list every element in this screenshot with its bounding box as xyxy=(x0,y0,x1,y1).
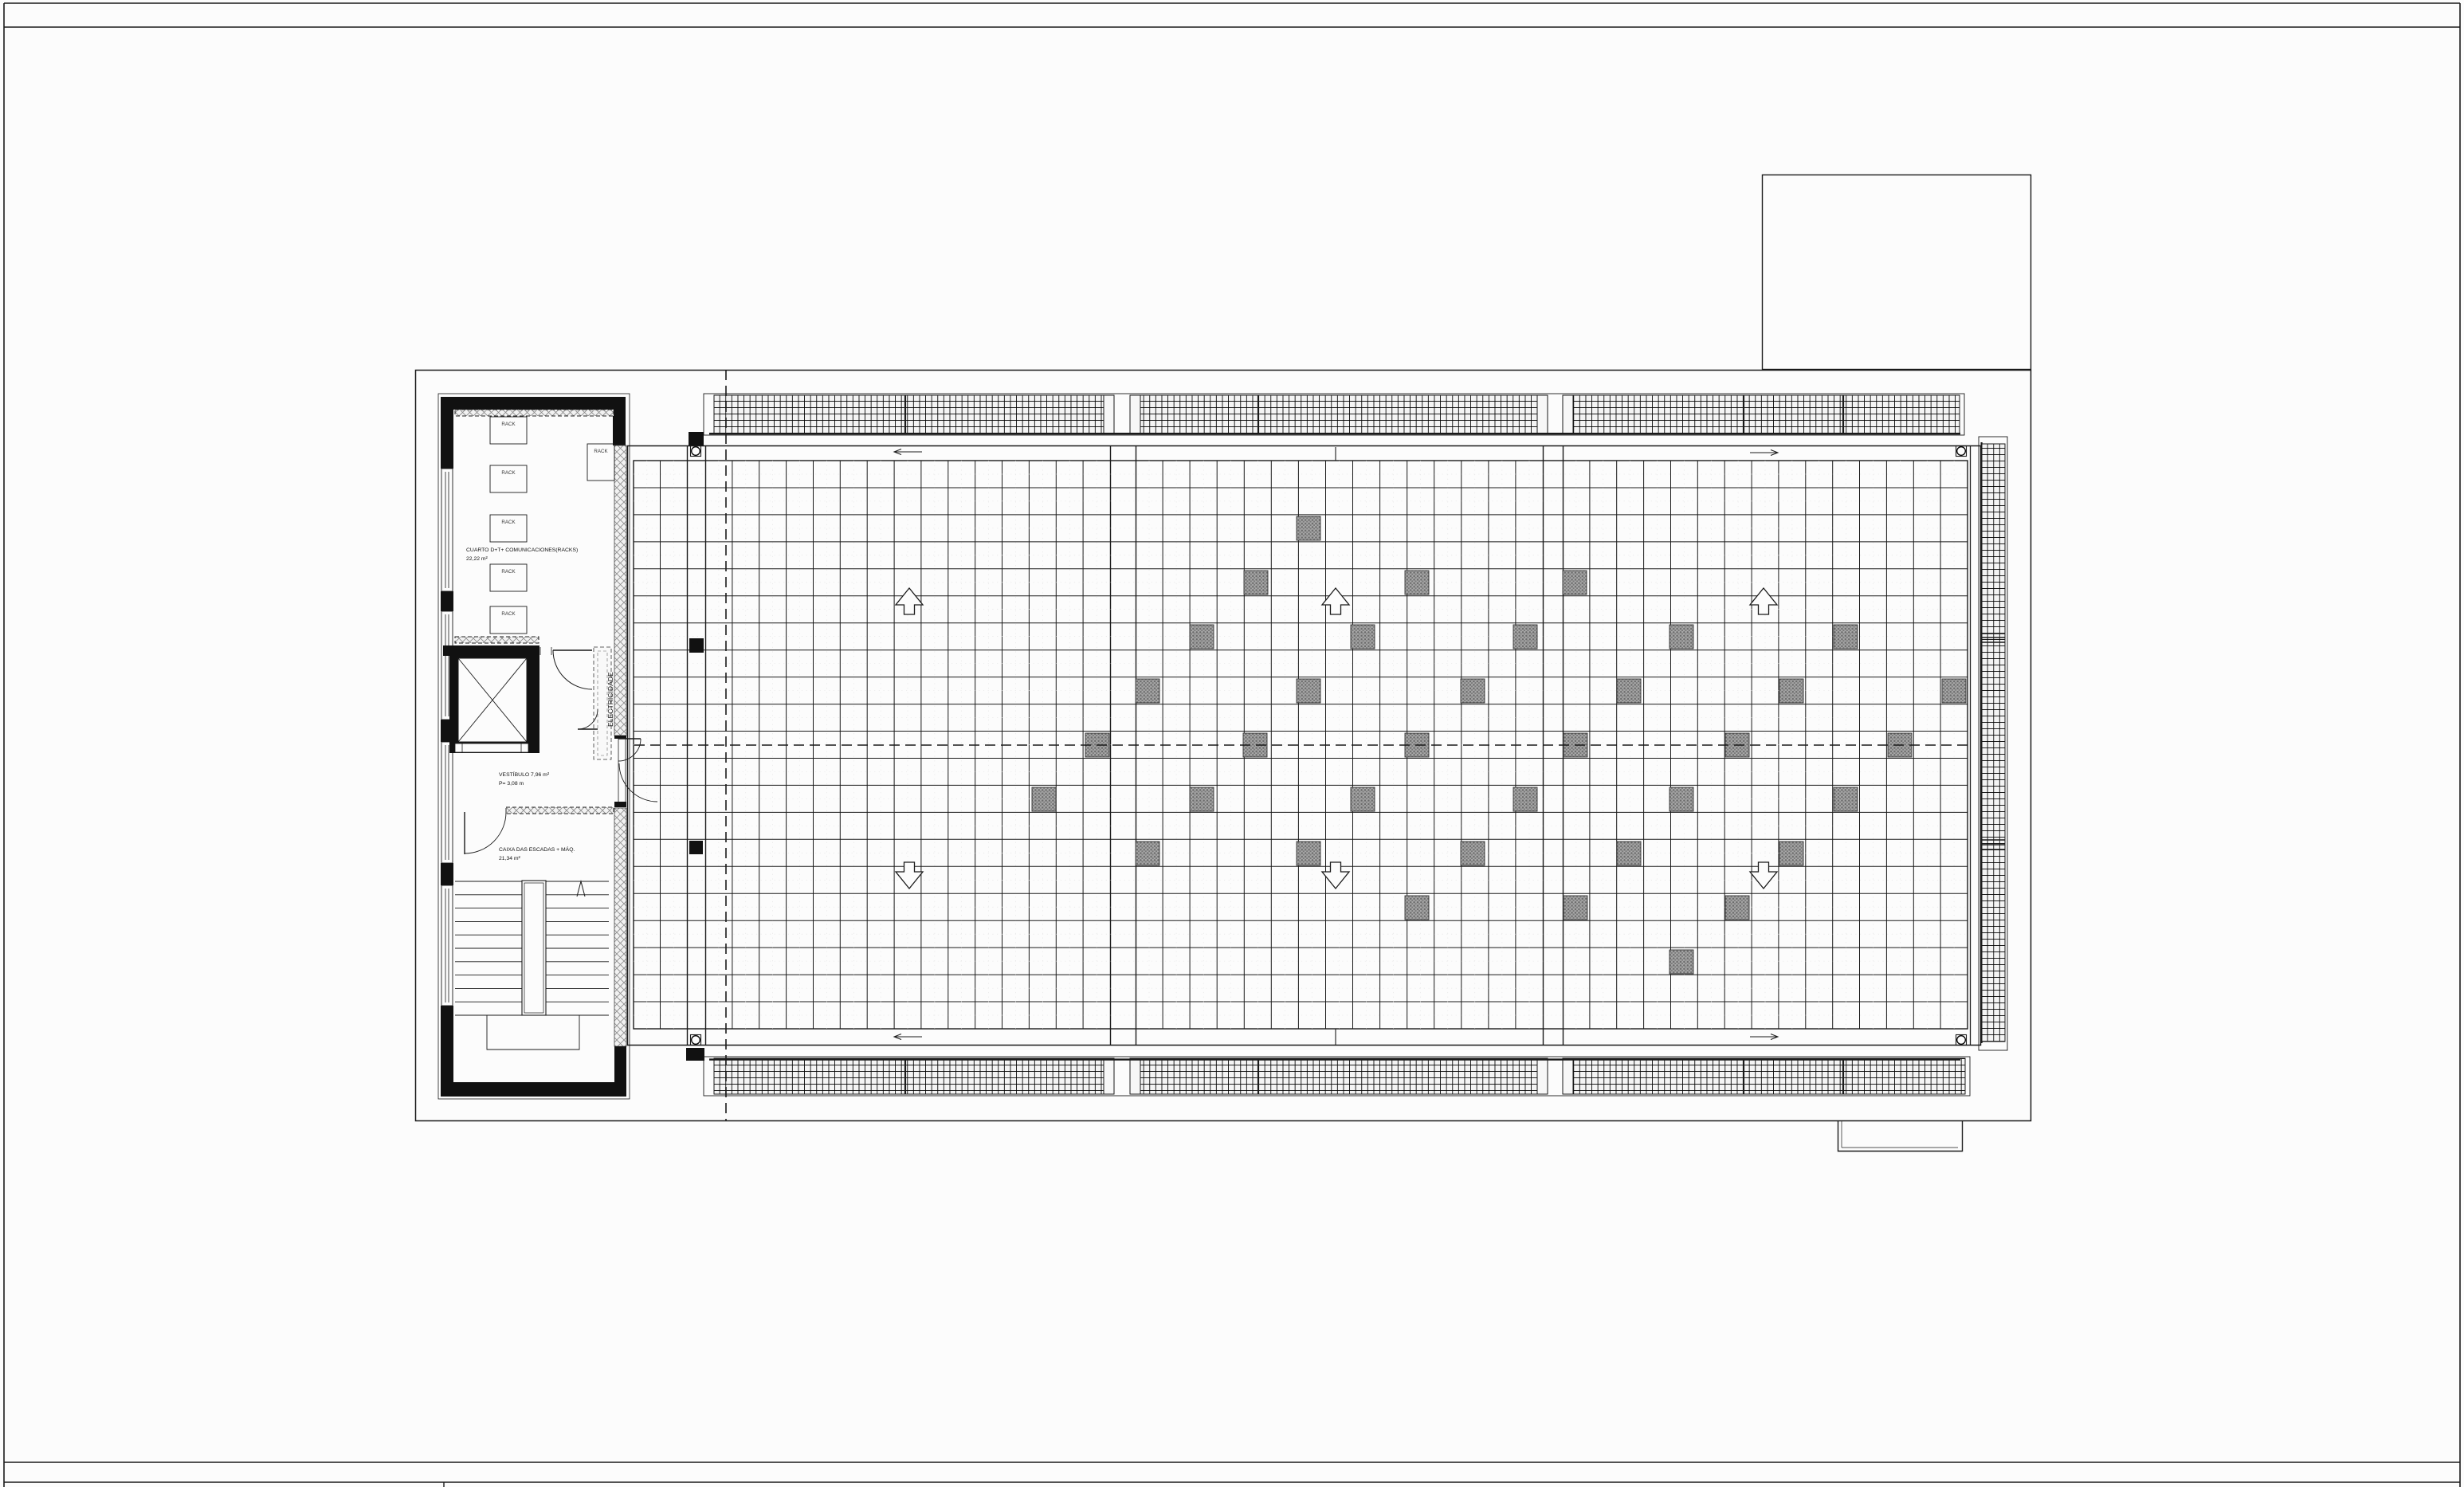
svg-text:22,22 m²: 22,22 m² xyxy=(466,556,488,562)
svg-text:RACK: RACK xyxy=(501,569,516,575)
svg-text:RACK: RACK xyxy=(501,470,516,476)
svg-text:P= 3,08 m: P= 3,08 m xyxy=(499,781,524,787)
svg-text:CAIXA DAS ESCADAS + MÁQ.: CAIXA DAS ESCADAS + MÁQ. xyxy=(499,846,575,853)
svg-text:21,34 m²: 21,34 m² xyxy=(499,856,521,861)
svg-text:RACK: RACK xyxy=(594,449,608,454)
svg-text:RACK: RACK xyxy=(501,422,516,427)
svg-text:VESTÍBULO 7,96 m²: VESTÍBULO 7,96 m² xyxy=(499,771,550,778)
svg-text:RACK: RACK xyxy=(501,611,516,617)
svg-text:ELECTRICIDADE: ELECTRICIDADE xyxy=(606,672,614,727)
svg-text:RACK: RACK xyxy=(501,520,516,525)
svg-text:CUARTO D+T+ COMUNICACIONES(RAC: CUARTO D+T+ COMUNICACIONES(RACKS) xyxy=(466,547,578,553)
